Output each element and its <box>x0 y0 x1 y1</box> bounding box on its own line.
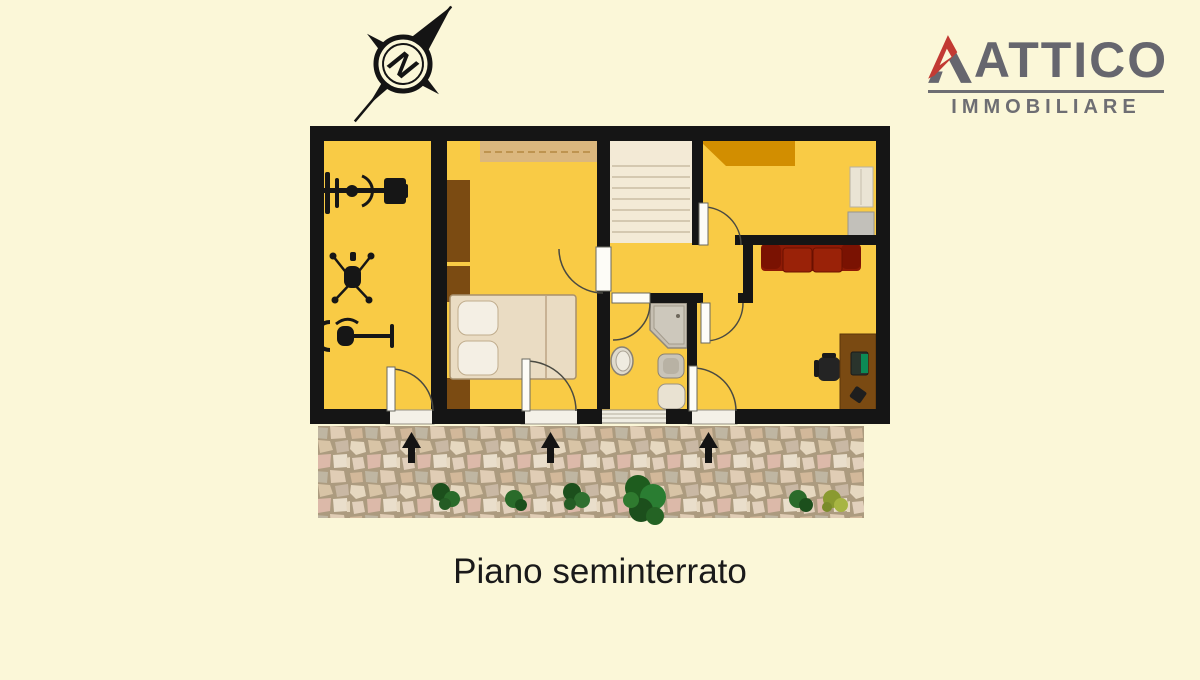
window <box>601 410 667 423</box>
wardrobe-left <box>447 378 470 412</box>
door-sill <box>386 410 434 424</box>
outer-wall-bottom <box>735 409 890 424</box>
door-leaf <box>522 359 530 411</box>
inner-wall <box>650 293 703 303</box>
door-leaf <box>612 293 650 303</box>
door-leaf <box>387 367 395 411</box>
outer-wall-top <box>310 126 890 141</box>
outer-wall-bottom <box>577 409 602 424</box>
double-bed <box>450 295 576 379</box>
bidet <box>658 384 685 409</box>
logo-wordmark: ATTICO <box>926 30 1166 86</box>
door-leaf <box>701 303 710 343</box>
agency-logo: ATTICO IMMOBILIARE <box>926 30 1166 119</box>
sofa <box>761 244 861 272</box>
logo-subtitle: IMMOBILIARE <box>926 96 1166 119</box>
outer-wall-bottom <box>310 409 390 424</box>
inner-wall <box>735 235 876 245</box>
outer-wall-bottom <box>666 409 692 424</box>
pillow <box>458 301 498 335</box>
logo-title: ATTICO <box>974 34 1168 86</box>
outer-wall-left <box>310 126 324 424</box>
inner-wall <box>597 141 610 249</box>
outer-wall-bottom <box>432 409 525 424</box>
stone-path <box>318 426 864 525</box>
staircase <box>610 141 692 243</box>
door-leaf <box>699 203 708 245</box>
logo-divider <box>928 90 1164 93</box>
door-sill <box>521 410 579 424</box>
page-background: N <box>0 0 1200 680</box>
pillow <box>458 341 498 375</box>
outer-wall-right <box>876 126 890 424</box>
floor-plan <box>310 126 890 424</box>
door-sill <box>688 410 737 424</box>
inner-wall <box>597 289 610 409</box>
shower-drain <box>676 314 680 318</box>
wardrobe-left <box>447 180 470 262</box>
floor-caption: Piano seminterrato <box>0 552 1200 592</box>
door-leaf <box>689 366 697 411</box>
logo-letter-a-icon <box>924 32 976 86</box>
door-leaf <box>596 247 611 291</box>
monitor <box>851 352 868 375</box>
inner-wall <box>743 235 753 303</box>
inner-wall <box>431 141 447 409</box>
